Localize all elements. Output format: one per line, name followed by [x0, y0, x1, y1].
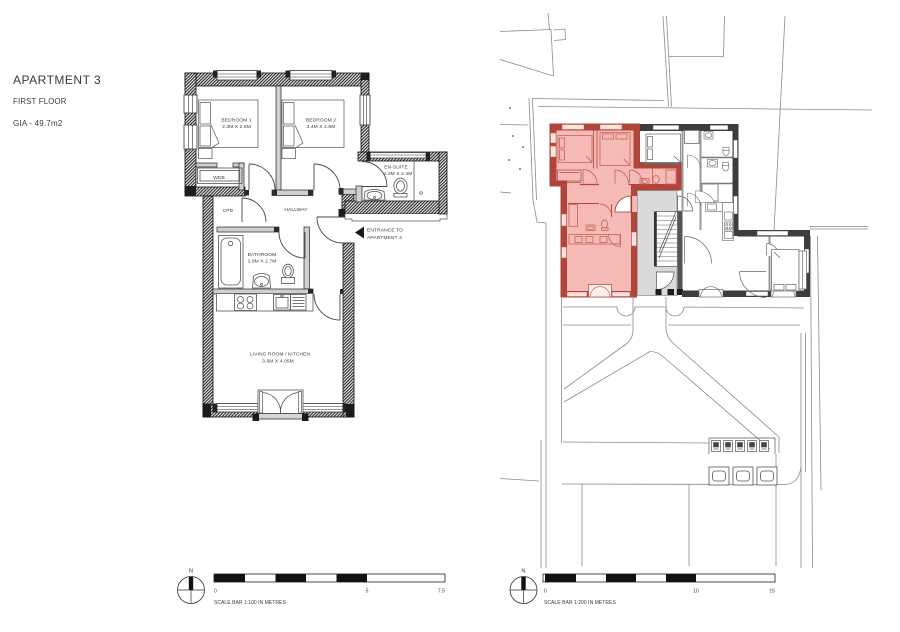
svg-text:1.9M X 2.7M: 1.9M X 2.7M	[248, 259, 277, 265]
svg-text:APARTMENT 3: APARTMENT 3	[367, 235, 402, 241]
svg-text:2.3M X 2.6M: 2.3M X 2.6M	[222, 124, 251, 130]
svg-text:7.5: 7.5	[438, 589, 445, 595]
svg-text:CPD: CPD	[223, 208, 234, 214]
svg-text:0: 0	[544, 589, 547, 595]
svg-text:BEDROOM 1: BEDROOM 1	[221, 118, 251, 124]
svg-text:0: 0	[214, 589, 217, 595]
svg-text:HALLWAY: HALLWAY	[284, 207, 308, 213]
svg-text:BATHROOM: BATHROOM	[248, 252, 277, 258]
svg-text:N: N	[189, 569, 193, 575]
svg-text:10: 10	[693, 589, 699, 595]
svg-text:GIA - 49.7m2: GIA - 49.7m2	[13, 119, 63, 128]
svg-text:BEDROOM 2: BEDROOM 2	[306, 118, 336, 124]
svg-text:3.4M X 2.8M: 3.4M X 2.8M	[307, 124, 336, 130]
svg-text:SCALE BAR 1:200 IN METRES: SCALE BAR 1:200 IN METRES	[544, 600, 616, 606]
svg-text:N: N	[521, 569, 525, 575]
svg-text:5: 5	[366, 589, 369, 595]
svg-text:LIVING ROOM / KITCHEN: LIVING ROOM / KITCHEN	[250, 352, 311, 358]
svg-text:15: 15	[769, 589, 775, 595]
svg-text:APARTMENT 3: APARTMENT 3	[13, 73, 101, 87]
svg-text:SCALE BAR 1:100 IN METRES: SCALE BAR 1:100 IN METRES	[214, 600, 286, 606]
svg-text:FIRST FLOOR: FIRST FLOOR	[13, 97, 67, 106]
svg-text:WDB: WDB	[213, 175, 225, 181]
svg-text:ENTRANCE TO: ENTRANCE TO	[367, 228, 403, 234]
svg-text:EN-SUITE: EN-SUITE	[384, 165, 408, 171]
svg-text:3.6M X 4.05M: 3.6M X 4.05M	[262, 359, 294, 365]
svg-text:1.3M X 2.4M: 1.3M X 2.4M	[384, 171, 413, 177]
